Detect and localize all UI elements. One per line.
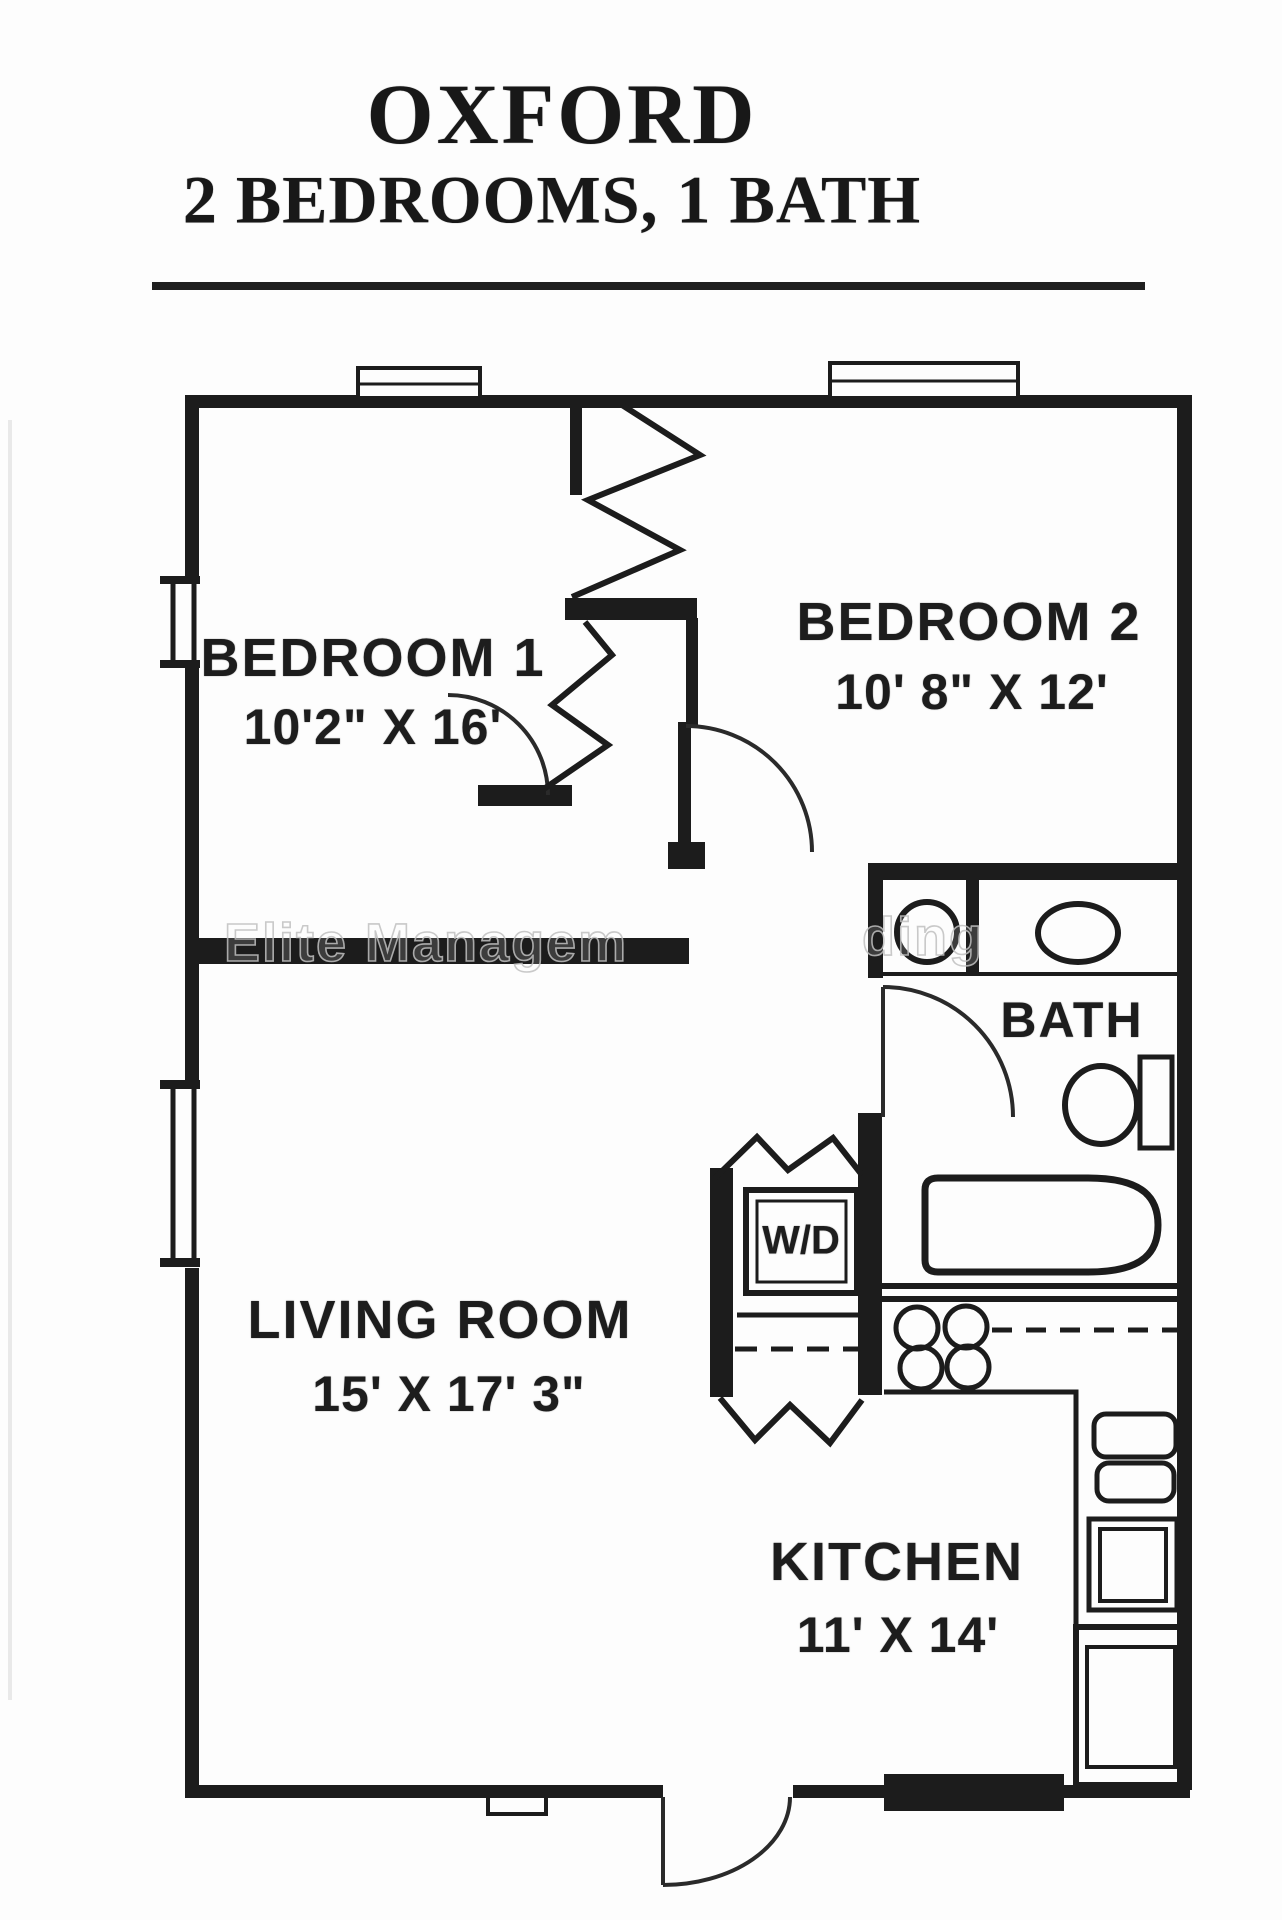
stove-burner — [947, 1346, 989, 1388]
bedroom2-door-leaf — [678, 722, 691, 852]
dishwasher — [1089, 1519, 1177, 1610]
bathtub — [925, 1178, 1158, 1272]
left-window-lower-cap — [160, 1258, 200, 1267]
washer-dryer-label: W/D — [762, 1219, 840, 1264]
watermark-text: ding — [862, 906, 984, 968]
toilet-tank — [1140, 1057, 1172, 1148]
left-window-upper — [173, 583, 194, 662]
bath-kitchen-wall-line — [880, 1283, 1190, 1289]
bath-kitchen-wall-line — [880, 1296, 1190, 1302]
kitchen-label: KITCHEN — [770, 1531, 1024, 1593]
bottom-wall-segment — [185, 1785, 663, 1798]
left-window-lower — [173, 1088, 194, 1262]
refrigerator — [1076, 1627, 1186, 1785]
bath-door-arc — [883, 987, 1013, 1117]
left-wall-segment — [185, 395, 199, 582]
stove-burner — [945, 1306, 987, 1348]
laundry-bifold-bottom — [720, 1398, 862, 1443]
closet-top-wall — [570, 395, 582, 495]
closet-bottom-wall — [565, 598, 697, 620]
bedroom2-label: BEDROOM 2 — [796, 591, 1141, 653]
refrigerator-inner — [1087, 1647, 1175, 1767]
interior-walls — [195, 395, 1190, 1397]
bedroom1-dimensions: 10'2" X 16' — [244, 698, 503, 756]
bath-left-wall — [858, 1113, 882, 1395]
bedroom2-wall — [686, 618, 698, 726]
laundry-closet — [735, 1190, 862, 1349]
bottom-wall-notch — [488, 1798, 546, 1814]
page-title: OXFORD — [367, 64, 758, 164]
bedroom2-door-stub — [668, 842, 705, 869]
kitchen-sink-basin — [1094, 1414, 1176, 1457]
bottom-window-bar — [884, 1797, 1064, 1811]
floor-plan-drawing — [0, 0, 1282, 1920]
bedroom1-closet-door — [538, 622, 612, 793]
left-window-upper-cap — [160, 660, 200, 668]
bath-label: BATH — [1000, 991, 1143, 1049]
entry-door-arc — [663, 1797, 790, 1885]
living-room-label: LIVING ROOM — [248, 1289, 633, 1351]
floor-plan-page: OXFORD 2 BEDROOMS, 1 BATH — [0, 0, 1282, 1920]
bedroom1-label: BEDROOM 1 — [200, 627, 545, 689]
page-subtitle: 2 BEDROOMS, 1 BATH — [183, 161, 921, 240]
vanity-top-wall — [868, 863, 1183, 880]
stove-burner — [900, 1347, 942, 1389]
laundry-bifold-top — [715, 1137, 862, 1178]
stove-burner — [896, 1307, 938, 1349]
kitchen-dimensions: 11' X 14' — [797, 1606, 999, 1664]
bedroom1-closet-wall — [478, 785, 572, 806]
dishwasher-inner — [1100, 1529, 1166, 1601]
vanity-oval-sink — [1038, 904, 1118, 962]
kitchen-sink-basin — [1097, 1463, 1174, 1501]
bedroom2-door-arc — [686, 726, 812, 852]
left-window-lower-cap — [160, 1080, 200, 1089]
bedroom2-dimensions: 10' 8" X 12' — [835, 663, 1109, 721]
left-wall-segment — [185, 663, 199, 1082]
laundry-left-wall — [710, 1168, 733, 1397]
toilet-bowl — [1065, 1066, 1137, 1144]
left-window-upper-cap — [160, 576, 200, 584]
bedroom2-closet-door — [572, 405, 700, 597]
top-wall — [185, 395, 1190, 408]
living-room-dimensions: 15' X 17' 3" — [312, 1365, 586, 1423]
left-wall-segment — [185, 1268, 199, 1790]
bottom-window-bar — [884, 1774, 1064, 1788]
watermark-text: Elite Managem — [224, 912, 628, 974]
